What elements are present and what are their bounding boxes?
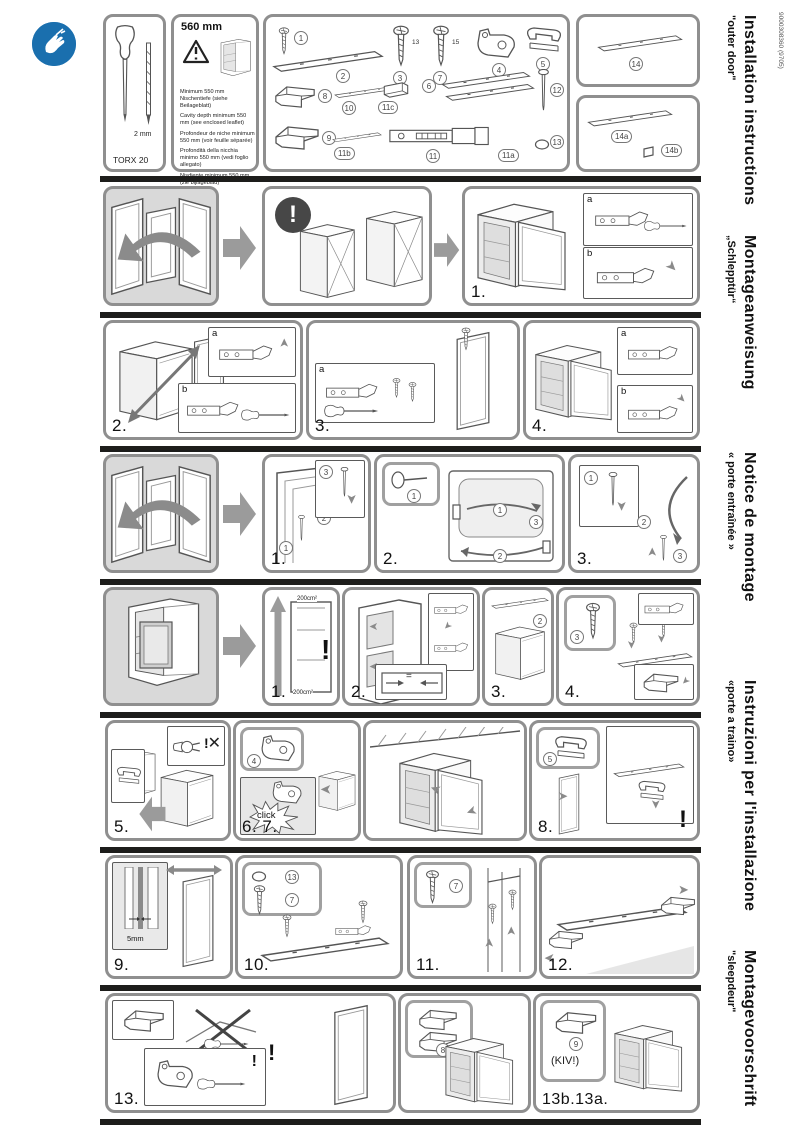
installer-hand-icon [32,22,76,66]
niche-note-en: Cavity depth minimum 550 mm (see enclose… [180,113,256,127]
step-m2-inset-alignment: = [375,664,447,700]
niche-note-de: Minimum 550 mm Nischentiefe (siehe Beila… [180,89,256,110]
step-number: 3. [315,416,330,436]
step-9-panel: 5mm 9. [105,855,233,979]
step-13b-13a-panel: 9 (KIV!) 13b.13a. [533,993,700,1113]
part-5-clip-icon [524,25,564,53]
part-callout-box: 13 7 [242,862,322,916]
step-number: 13. [114,1089,139,1109]
screw-icon [488,902,497,926]
screw-icon [585,602,601,640]
power-plug-icon [171,737,203,757]
fridge-in-niche-sketch [138,620,176,672]
step-number: 3. [577,549,592,569]
step-number: 8. [538,817,553,837]
door-panel-sketch [174,874,222,968]
callout-3: 3 [673,549,687,563]
callout-9: 9 [569,1037,583,1051]
part-callout-box: 7 [414,862,472,908]
equal-gap-symbol: = [406,671,412,682]
part-1-label: 1 [294,31,308,45]
arrow-right-icon: ➤ [678,882,689,898]
step-5-panel: ! ✕ 5. [105,720,231,841]
arrow-up-icon: ➤ [482,938,496,948]
part-14a-label: 14a [611,130,632,143]
step-4-panel: a b ➤ 4. [523,320,700,440]
step-m1-panel: 200cm² 200cm² ! 1. [262,587,340,706]
hinge-sketch [217,342,277,366]
step-number: 1. [471,282,486,302]
part-14a-strip-icon [587,108,673,128]
callout-13: 13 [285,870,299,884]
arrow-down-icon: ➤ [649,799,663,809]
step-number: 9. [114,955,129,975]
screw-icon [282,914,292,938]
callout-3: 3 [529,515,543,529]
step-m4-panel: 3 ➤ ➤ ➤ 4. [556,587,700,706]
arrow-up-icon: ➤ [277,338,291,348]
door-panel-sketch [447,331,499,431]
arrow-left-icon: ➤ [320,781,332,798]
hinge-sketch [626,402,682,426]
niche-note-it: Profondità della nicchia minimo 550 mm (… [180,148,256,169]
step-number: 2. [383,549,398,569]
warning-exclamation: ! [268,1040,275,1066]
installer-badge [32,22,76,66]
cap-8-panel: 8 [398,993,531,1113]
part-callout-box: 5 [536,727,600,769]
arrow-down-icon: ➤ [343,494,359,505]
part-3-length-label: 13 [412,39,419,46]
warning-exclamation: ! [321,634,330,666]
callout-1: 1 [584,471,598,485]
step-m4-inset-bottom: ➤ [634,664,694,700]
vent-area-top-label: 200cm² [297,596,317,602]
inset-a-label: a [212,328,217,339]
part-14b-icon [641,146,656,159]
step-f3-inset: 1 ➤ [579,465,639,527]
door-panel-sketch [322,1004,380,1106]
inset-b-label: b [621,386,626,397]
tall-cabinet-sketch [361,193,427,303]
step-number: 13b.13a. [542,1091,608,1109]
cross-forbidden-icon: ✕ [208,733,221,753]
part-6-rail-icon [444,83,536,101]
niche-width-label: 560 mm [181,21,222,33]
callout-1: 1 [407,489,421,503]
step-f3-panel: 1 ➤ 2 ➤ 3 3. [568,454,700,573]
hinge-part-sketch [257,734,299,764]
inset-b-label: b [182,384,187,395]
airflow-arrow-icon [270,596,286,696]
fridge-open-door-sketch [608,1006,700,1106]
part-6-label: 6 [422,79,436,93]
screwdriver-icon [324,402,380,420]
hinge-sketch [324,380,382,404]
part-8-label: 8 [318,89,332,103]
part-11b-label: 11b [334,147,355,160]
part-2-rail-icon [272,49,384,73]
screwdriver-type-label: TORX 20 [113,155,148,165]
warning-exclamation: ! [252,1053,257,1071]
part-13-cap-icon [534,139,550,150]
fridge-sketch [469,195,589,293]
callout-4: 4 [247,754,261,768]
arrow-down-left-icon: ➤ [440,619,454,633]
part-14ab-panel: 14a 14b [576,95,700,172]
lang-it-title: Instruzioni per l'installazione [740,680,758,911]
door-swap-sketch [108,459,214,569]
step-3-inset-a: a [315,363,435,423]
step-4-inset-a: a [617,327,693,375]
callout-3: 3 [319,465,333,479]
clip-sketch [635,779,669,801]
step-5-inset-plug: ! ✕ [167,726,225,766]
screw-7-icon [253,885,266,915]
lang-fr-subtitle: « porte entraînée » [725,452,737,602]
step-2-inset-a: a ➤ [208,327,296,377]
hinge-sketch [334,922,374,940]
step-f2-panel: 1 1 3 2 2. [374,454,565,573]
screw-icon [461,327,471,351]
step-number: 1. [271,682,286,702]
drill-bit-icon [143,41,155,129]
lang-block-en: Installation instructions "outer door" [725,15,758,205]
lang-block-nl: Montagevoorschrift "sleepdeur" [725,950,758,1107]
document-code: 9000308360 (9705) [777,12,784,69]
clip-sketch [115,764,143,786]
part-11-slider-icon [388,125,492,147]
niche-note-fr: Profondeur de niche minimum 550 mm (voir… [180,131,256,145]
separator-bar [100,847,701,853]
lang-it-subtitle: «porte a traino» [725,680,737,911]
cap-part-sketch [553,1009,599,1037]
fridge-open-door-sketch [439,1028,531,1110]
flow-arrow-right-icon [223,490,257,538]
lang-block-it: Instruzioni per l'installazione «porte a… [725,680,758,911]
callout-5: 5 [543,752,557,766]
tools-panel: 2 mm TORX 20 [103,14,166,172]
curved-arrow-icon [641,469,695,547]
pin-icon [659,535,668,561]
separator-bar [100,1119,701,1125]
niche-note-nl: Nisdiepte minimum 550 mm (zie bijlagebla… [180,173,256,187]
step-number: 6. 7. [242,817,278,837]
step-m2-panel: ➤ ➤ ➤ = 2. [342,587,480,706]
part-14b-label: 14b [661,144,682,157]
hinge-sketch [185,398,243,422]
part-12-label: 12 [550,83,564,97]
door-alignment-sketch [380,671,444,695]
lang-block-de: Montageanweisung „Schlepptür“ [725,235,758,390]
arrow-right-icon: ➤ [558,789,568,803]
screw-icon [508,888,517,912]
part-7-screw-icon [432,25,450,67]
step-13-inset-install: ! [144,1048,266,1106]
pin-icon [340,467,349,497]
screw-7-icon [425,870,440,904]
flow-arrow-right-icon [223,224,257,272]
callout-3: 3 [570,630,584,644]
inset-a-label: a [587,194,592,205]
door-adjust-panel: ➤ ➤ [363,720,527,841]
double-arrow-icon [166,862,222,878]
part-callout-box: 1 [382,462,440,506]
step-m3-panel: 2 3. [482,587,554,706]
callout-7: 7 [449,879,463,893]
step-13-panel: ! ! 13. [105,993,396,1113]
lang-de-subtitle: „Schlepptür“ [725,235,737,390]
callout-2: 2 [493,549,507,563]
inset-a-label: a [319,364,324,375]
part-callout-box: 4 [240,727,304,771]
arrow-down-icon: ➤ [625,640,638,649]
arrow-left-icon: ➤ [369,620,378,633]
part-2-label: 2 [336,69,350,83]
cap-sketch [123,1007,165,1035]
screwdriver-icon [241,406,291,424]
lang-nl-subtitle: "sleepdeur" [725,950,737,1107]
lang-en-title: Installation instructions [740,15,758,205]
cap-part-sketch [153,1059,197,1091]
part-11-label: 11 [426,149,440,163]
screwdriver-icon [644,218,688,234]
step-12-panel: ➤ ➤ 12. [539,855,700,979]
step-number: 5. [114,817,129,837]
inset-b-label: b [587,248,592,259]
appliance-types-warning-panel: ! [262,186,432,306]
cap-sketch [548,928,584,952]
step-1-inset-b: b ➤ [583,247,693,299]
screwdriver-icon [197,1075,247,1093]
rail-clip-sketch [643,600,687,618]
step-1-inset-a: a [583,193,693,246]
screw-icon [408,382,417,402]
arrow-up-icon: ➤ [504,926,518,936]
part-11b-strip-icon [332,131,382,143]
step-f1-panel: 1 2 3 ➤ 1. [262,454,371,573]
step-number: 2. [351,682,366,702]
cap-sketch [641,671,681,695]
step-number: 3. [491,682,506,702]
instruction-sheet: 9000308360 (9705) Installation instructi… [0,0,802,1133]
lang-nl-title: Montagevoorschrift [740,950,758,1107]
callout-2: 2 [637,515,651,529]
flow-arrow-right-icon [223,622,257,670]
step-number: 4. [565,682,580,702]
step-3-panel: a 3. [306,320,520,440]
lang-fr-title: Notice de montage [740,452,758,602]
step-6-7-panel: 4 click ➤ 6. 7. [233,720,361,841]
pin-icon [297,515,306,541]
rail-sketch [613,761,685,779]
door-swap-sketch [108,191,214,301]
cabinet-sketch [295,217,359,303]
part-14-panel: 14 [576,14,700,87]
separator-bar [100,446,701,452]
part-callout-box: 3 [564,595,616,651]
part-7-length-label: 15 [452,39,459,46]
callout-2: 2 [533,614,547,628]
arrow-down-icon: ➤ [655,634,668,643]
part-8-cap-icon [274,83,316,111]
separator-bar [100,312,701,318]
part-11a-label: 11a [498,149,519,162]
part-4-hinge-icon [474,27,518,61]
niche-intro-panel [103,587,219,706]
separator-bar [100,985,701,991]
hinge-sketch [594,264,660,290]
part-11c-icon [382,81,410,99]
gap-label: 5mm [127,934,144,943]
door-gap-sketch [121,867,161,929]
step-10-panel: 13 7 10. [235,855,403,979]
part-13-label: 13 [550,135,564,149]
part-14-strip-icon [597,33,683,53]
lang-de-title: Montageanweisung [740,235,758,390]
screw-icon [358,900,368,924]
vent-area-bottom-label: 200cm² [293,690,313,696]
step-number: 2. [112,416,127,436]
cap-13-icon [251,871,267,882]
screw-icon [392,378,401,398]
separator-bar [100,579,701,585]
hinge-sketch [433,602,471,618]
step-13-inset-cap [112,1000,174,1040]
arrow-down-icon: ➤ [613,501,629,512]
clip-part-sketch [551,734,591,760]
step-5-inset-clip [111,749,145,803]
niche-dimensions-panel: 560 mm Minimum 550 mm Nischentiefe (sieh… [171,14,259,172]
separator-bar [100,712,701,718]
part-10-label: 10 [342,101,356,115]
step-11-panel: 7 ➤ ➤ 11. [407,855,537,979]
warning-triangle-icon [182,39,210,65]
step-f1-inset: 3 ➤ [315,460,365,518]
warning-exclamation: ! [679,806,687,834]
hinge-sketch [626,342,682,366]
lang-en-subtitle: "outer door" [725,15,737,205]
lang-block-fr: Notice de montage « porte entraînée » [725,452,758,602]
parts-overview-panel: 1 2 13 3 15 7 4 5 8 10 11c 6 12 9 11b 11… [263,14,570,172]
arrow-down-right-icon: ➤ [662,256,682,276]
step-1-panel: a b ➤ 1. [462,186,700,306]
niche-notes: Minimum 550 mm Nischentiefe (siehe Beila… [180,89,256,190]
step-number: 1. [271,549,286,569]
part-12-pin-icon [538,69,549,111]
inset-a-label: a [621,328,626,339]
callout-1: 1 [493,503,507,517]
shadow-sketch [586,946,696,976]
part-9-cap-icon [274,123,320,153]
arrow-up-icon: ➤ [645,547,659,557]
pin-icon [391,471,431,489]
step-2-inset-b: b [178,383,296,433]
step-m2-inset-hinges: ➤ [428,593,474,671]
step-m4-inset-top [638,593,694,625]
rail-on-top-icon [491,596,549,610]
callout-7: 7 [285,893,299,907]
step-4-inset-b: b ➤ [617,385,693,433]
niche-sketch [214,35,256,85]
hinge-sketch [433,640,471,656]
kiv-label: (KIV!) [551,1055,579,1067]
door-swap-intro-panel [103,186,219,306]
step-number: 11. [416,955,440,975]
part-callout-box: 9 (KIV!) [540,1000,606,1082]
step-number: 4. [532,416,547,436]
torx-screwdriver-icon [113,23,137,127]
door-panel-sketch [548,773,590,835]
door-swap-intro-panel-2 [103,454,219,573]
part-3-screw-icon [392,25,410,67]
step-number: 12. [548,955,573,975]
fridge-open-door-sketch [374,745,522,837]
step-number: 10. [244,955,269,975]
part-11c-label: 11c [378,101,398,114]
step-2-panel: a ➤ b 2. [103,320,303,440]
flow-arrow-right-icon [434,230,460,270]
part-14-label: 14 [629,57,643,71]
step-9-inset-gap: 5mm [112,862,168,950]
step-8-panel: 5 ➤ ➤ ! 8. [529,720,700,841]
bit-size-label: 2 mm [134,131,152,138]
